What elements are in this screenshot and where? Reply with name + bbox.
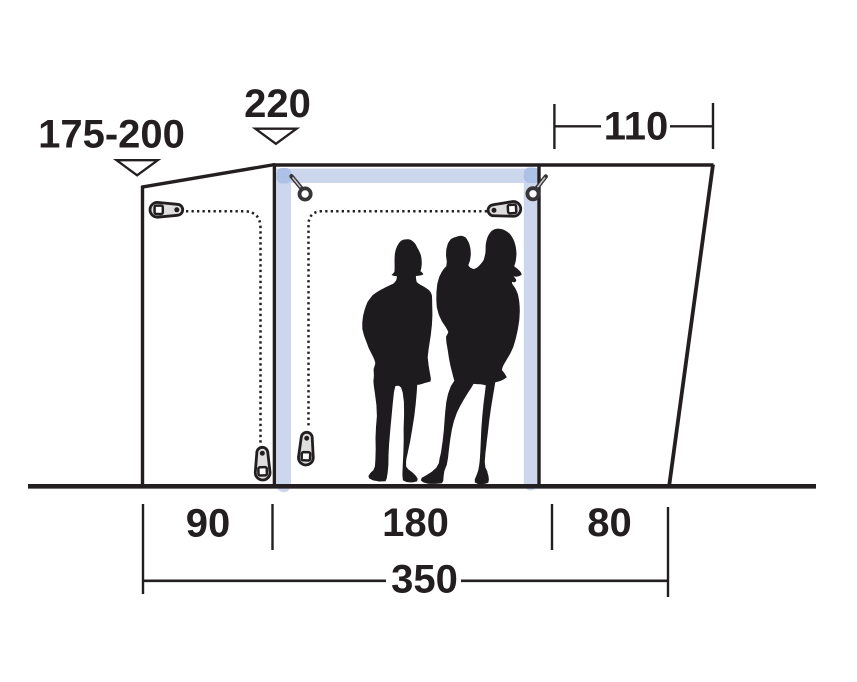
svg-text:110: 110 — [604, 105, 669, 149]
svg-text:180: 180 — [382, 501, 449, 545]
svg-text:175-200: 175-200 — [38, 113, 185, 157]
svg-text:350: 350 — [391, 558, 458, 602]
svg-text:220: 220 — [244, 82, 311, 126]
svg-text:80: 80 — [587, 501, 632, 545]
svg-text:90: 90 — [186, 502, 231, 546]
